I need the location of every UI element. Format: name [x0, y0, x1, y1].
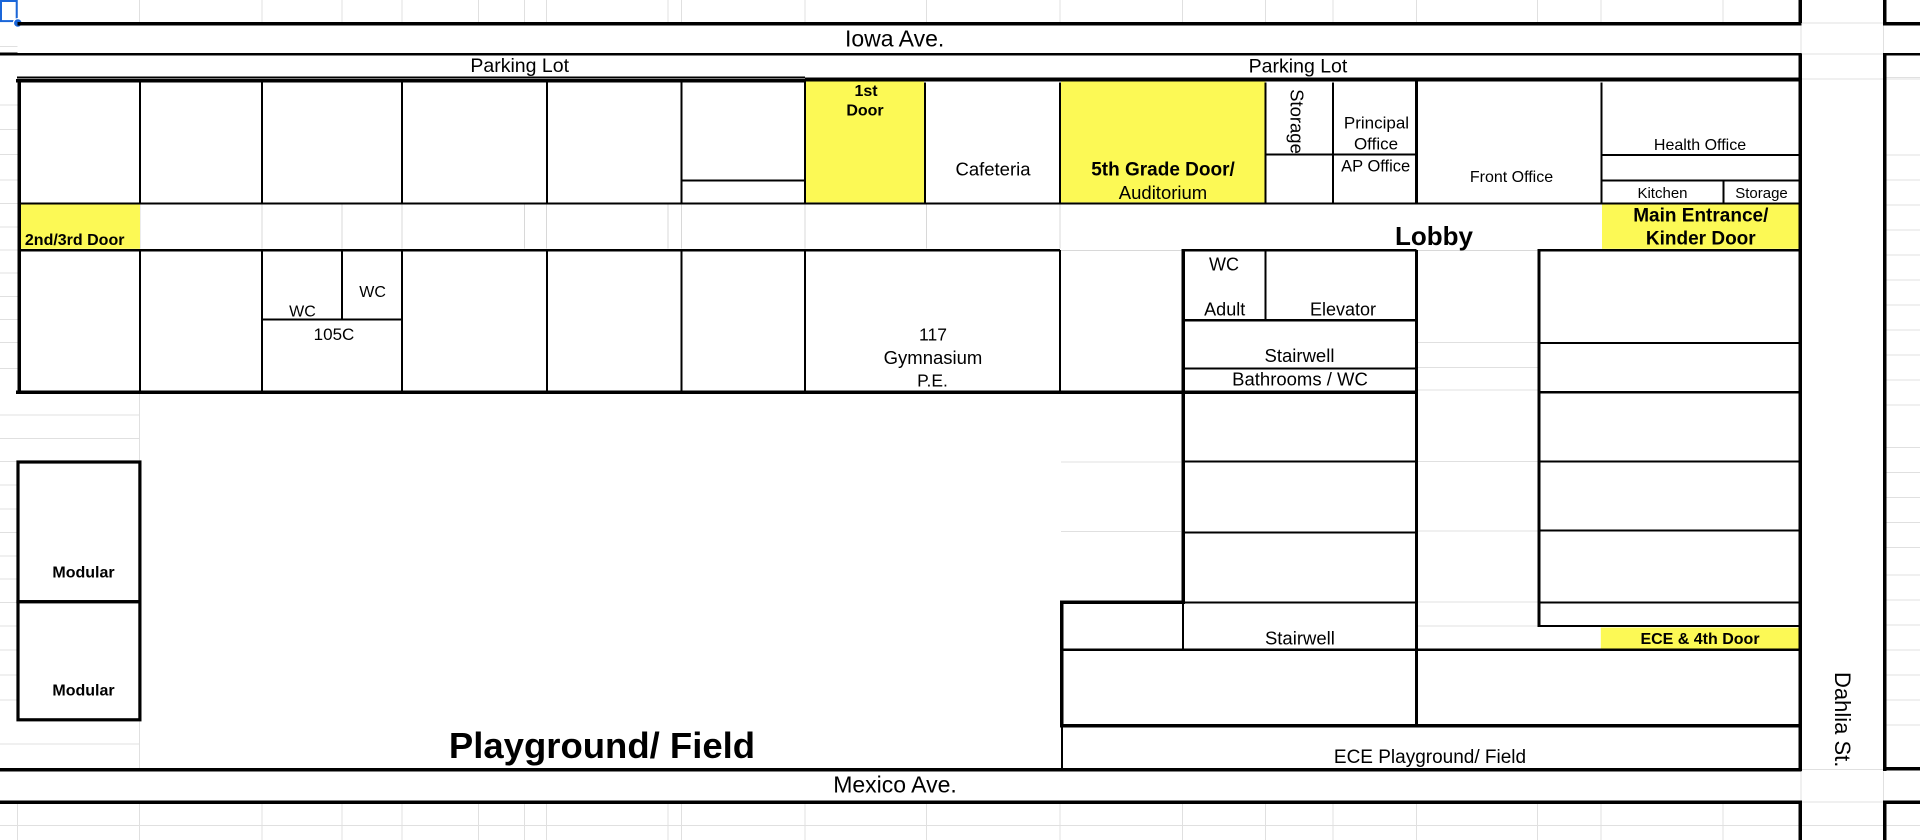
svg-text:Elevator: Elevator	[1310, 300, 1376, 320]
svg-text:Kinder Door: Kinder Door	[1646, 229, 1756, 250]
svg-text:Dahlia St.: Dahlia St.	[1830, 672, 1855, 767]
svg-text:1st: 1st	[854, 83, 878, 100]
svg-text:ECE & 4th Door: ECE & 4th Door	[1640, 631, 1759, 648]
svg-text:Modular: Modular	[52, 683, 114, 700]
svg-text:Health Office: Health Office	[1654, 137, 1746, 154]
svg-text:Modular: Modular	[52, 564, 114, 581]
svg-text:Kitchen: Kitchen	[1637, 185, 1687, 202]
svg-text:WC: WC	[359, 284, 386, 301]
svg-text:WC: WC	[289, 304, 316, 321]
svg-text:5th Grade Door/: 5th Grade Door/	[1091, 160, 1235, 181]
svg-text:Auditorium: Auditorium	[1119, 182, 1207, 203]
svg-text:Adult: Adult	[1204, 300, 1245, 320]
svg-text:P.E.: P.E.	[917, 371, 948, 391]
svg-text:Office: Office	[1354, 134, 1398, 153]
svg-text:Storage: Storage	[1287, 89, 1308, 154]
svg-text:Front Office: Front Office	[1470, 169, 1553, 186]
svg-text:105C: 105C	[314, 325, 355, 344]
svg-text:Stairwell: Stairwell	[1265, 345, 1335, 366]
svg-text:Principal: Principal	[1344, 113, 1409, 132]
svg-text:Playground/ Field: Playground/ Field	[449, 725, 755, 766]
svg-text:Cafeteria: Cafeteria	[955, 159, 1031, 180]
svg-text:Door: Door	[846, 103, 883, 120]
svg-text:Main Entrance/: Main Entrance/	[1633, 206, 1769, 227]
svg-text:Mexico Ave.: Mexico Ave.	[833, 772, 957, 798]
svg-text:Storage: Storage	[1735, 185, 1788, 202]
svg-text:Parking Lot: Parking Lot	[470, 55, 569, 77]
svg-text:Lobby: Lobby	[1395, 221, 1474, 251]
svg-text:Bathrooms / WC: Bathrooms / WC	[1232, 369, 1368, 390]
svg-text:Stairwell: Stairwell	[1265, 627, 1335, 648]
svg-text:WC: WC	[1209, 255, 1239, 275]
svg-text:2nd/3rd Door: 2nd/3rd Door	[25, 232, 125, 249]
svg-text:Iowa Ave.: Iowa Ave.	[845, 26, 944, 52]
svg-text:117: 117	[919, 325, 947, 345]
svg-text:Parking Lot: Parking Lot	[1249, 55, 1348, 77]
svg-text:Gymnasium: Gymnasium	[884, 347, 983, 368]
svg-text:ECE Playground/ Field: ECE Playground/ Field	[1334, 747, 1526, 768]
svg-text:AP Office: AP Office	[1341, 158, 1410, 176]
